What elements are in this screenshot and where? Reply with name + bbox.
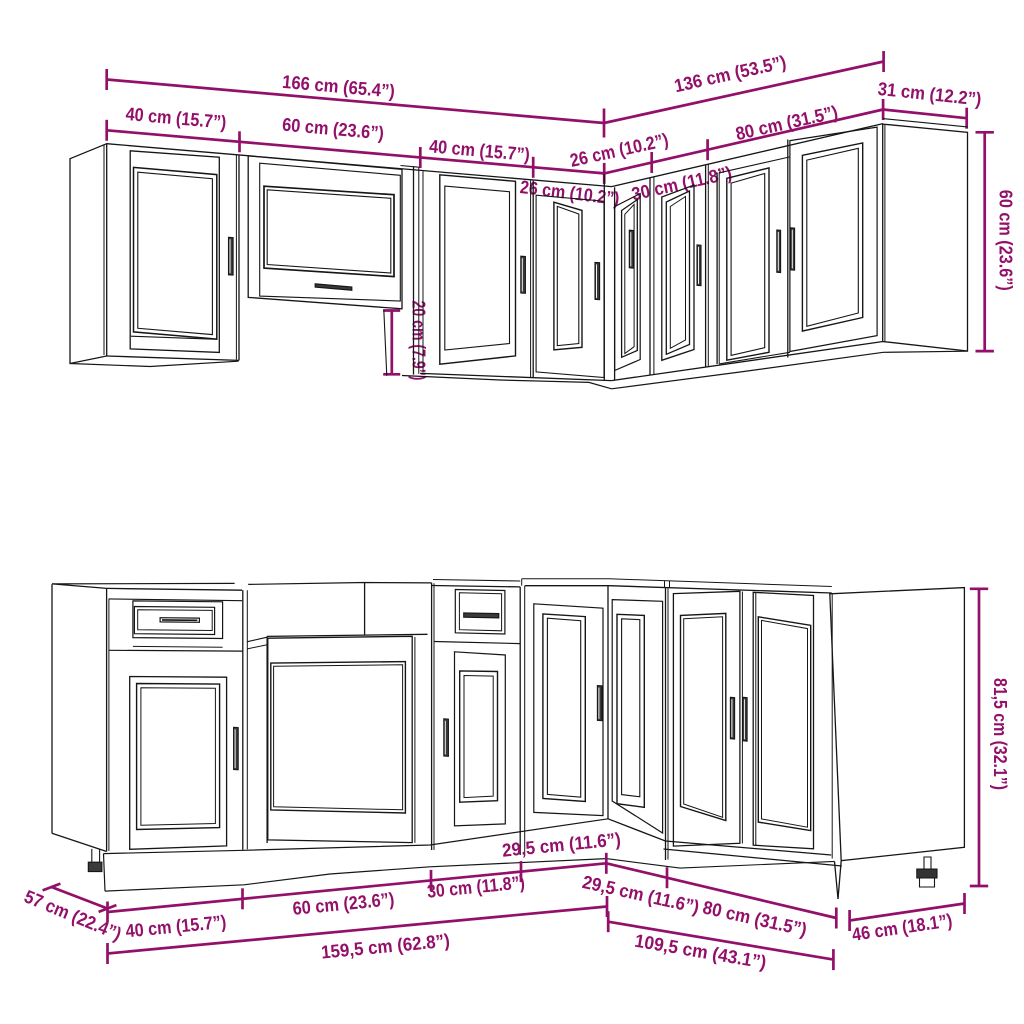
svg-text:81,5 cm (32.1”): 81,5 cm (32.1”) [990,678,1011,790]
svg-text:60 cm (23.6”): 60 cm (23.6”) [996,190,1017,291]
